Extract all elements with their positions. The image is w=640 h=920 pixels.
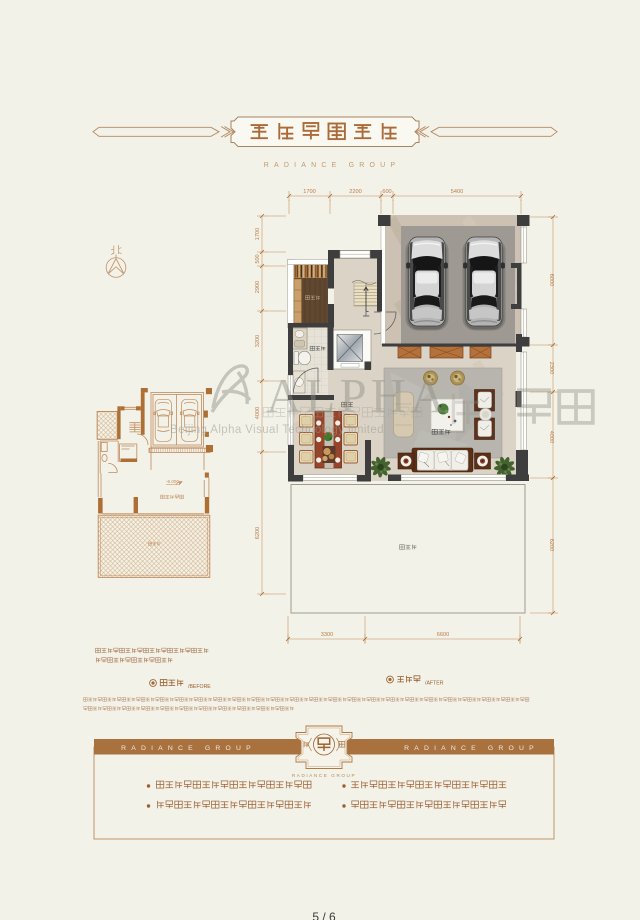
svg-text:3300: 3300 bbox=[321, 632, 333, 638]
svg-text:RADIANCE GROUP: RADIANCE GROUP bbox=[121, 745, 256, 752]
svg-text:2300: 2300 bbox=[548, 362, 554, 374]
svg-text:6000: 6000 bbox=[548, 274, 554, 286]
svg-text:2900: 2900 bbox=[255, 281, 261, 293]
svg-text:600: 600 bbox=[382, 189, 391, 195]
svg-text:Beijing Alpha Visual Technolog: Beijing Alpha Visual Technology limited bbox=[170, 424, 384, 436]
svg-text:6200: 6200 bbox=[255, 527, 261, 539]
svg-text:6200: 6200 bbox=[548, 539, 554, 551]
svg-text:1700: 1700 bbox=[303, 189, 315, 195]
svg-text:2200: 2200 bbox=[349, 189, 361, 195]
svg-text:RADIANCE GROUP: RADIANCE GROUP bbox=[404, 745, 539, 752]
svg-text:-6.000: -6.000 bbox=[166, 479, 179, 484]
svg-text:/AFTER: /AFTER bbox=[425, 681, 444, 687]
svg-text:3200: 3200 bbox=[255, 335, 261, 347]
svg-text:4000: 4000 bbox=[255, 407, 261, 419]
svg-text:/BEFORE: /BEFORE bbox=[188, 684, 211, 690]
svg-text:4000: 4000 bbox=[548, 431, 554, 443]
svg-text:1700: 1700 bbox=[255, 228, 261, 240]
svg-text:5 / 6: 5 / 6 bbox=[312, 910, 336, 920]
svg-text:RADIANCE GROUP: RADIANCE GROUP bbox=[264, 162, 401, 169]
svg-text:6600: 6600 bbox=[437, 632, 449, 638]
svg-text:500: 500 bbox=[255, 254, 261, 263]
svg-text:RADIANCE GROUP: RADIANCE GROUP bbox=[292, 773, 356, 778]
svg-text:5400: 5400 bbox=[451, 189, 463, 195]
